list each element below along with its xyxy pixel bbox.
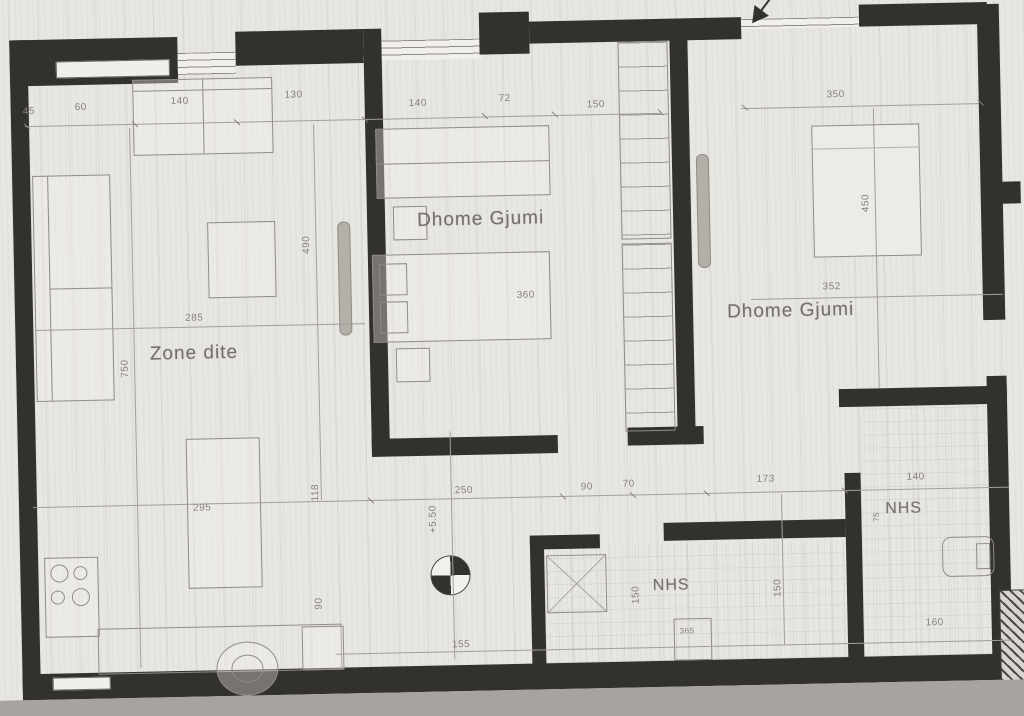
bed-right	[811, 123, 922, 257]
bed-line	[813, 146, 919, 149]
wall-exterior-top-3	[529, 17, 741, 43]
floor-plan-photo: +5.50	[0, 0, 1024, 716]
dimension-line	[129, 128, 141, 668]
wall-exterior-top-2	[235, 29, 364, 66]
wall-bedroom2-bath	[839, 386, 1007, 408]
dim-118: 118	[310, 484, 321, 502]
boiler-box	[673, 618, 712, 661]
dim-45: 45	[23, 106, 35, 117]
burner	[51, 590, 65, 604]
dim-90-vert: 90	[314, 597, 325, 609]
wall-exterior-right-upper	[977, 4, 1006, 320]
burner	[72, 588, 90, 606]
dim-250: 250	[455, 485, 473, 496]
wall-hatch-corner	[999, 589, 1024, 682]
burner	[73, 566, 87, 580]
dresser-line	[377, 160, 549, 165]
level-marker-icon	[430, 555, 471, 596]
sofa-cushion-line	[49, 287, 111, 289]
room-label-bedroom-center: Dhome Gjumi	[417, 207, 545, 232]
coffee-table	[207, 221, 277, 298]
washer-drum	[231, 654, 264, 683]
sofa-left	[32, 174, 115, 402]
room-label-bedroom-right: Dhome Gjumi	[727, 299, 855, 324]
stove	[44, 557, 100, 638]
dimension-line	[450, 431, 456, 659]
wall-bedroom1-bottom-left	[372, 435, 558, 457]
dim-90: 90	[581, 481, 593, 492]
window-inset-bottom-left	[53, 676, 111, 690]
wall-exterior-top-4	[859, 2, 987, 27]
kitchen-sink	[302, 626, 345, 671]
radiator	[337, 221, 352, 335]
dim-130: 130	[284, 89, 302, 100]
level-annotation: +5.50	[427, 505, 439, 533]
dim-450: 450	[860, 194, 871, 212]
dimension-line	[741, 103, 979, 109]
shower-cross-icon	[547, 555, 606, 612]
bedroom1-dresser	[375, 125, 550, 199]
pillar-top	[479, 12, 530, 55]
toilet	[942, 536, 995, 577]
wardrobe-lower	[622, 243, 676, 432]
burner	[50, 564, 68, 582]
radiator	[696, 154, 711, 268]
dim-140-bath: 140	[906, 471, 924, 482]
wardrobe-upper	[617, 41, 671, 240]
dim-750: 750	[120, 359, 131, 377]
dimension-line	[313, 124, 322, 500]
wall-stub-right	[1000, 181, 1020, 203]
dim-70: 70	[623, 478, 635, 489]
plan-sheet: +5.50	[0, 0, 1024, 716]
dim-160: 160	[926, 617, 944, 628]
room-label-zone-dite: Zone dite	[150, 342, 239, 366]
dim-365: 365	[680, 626, 695, 635]
dim-155: 155	[452, 639, 470, 650]
dim-360: 360	[517, 290, 535, 301]
dim-140: 140	[409, 98, 427, 109]
dim-285: 285	[185, 312, 203, 323]
dim-150-bath: 150	[772, 579, 783, 597]
pillow	[380, 301, 409, 334]
sofa-cushion-line	[202, 79, 205, 153]
dim-150-bath: 150	[630, 586, 641, 604]
wall-living-bedroom1	[363, 29, 390, 449]
dim-295: 295	[193, 502, 211, 513]
window-top-1	[178, 52, 236, 75]
dim-173: 173	[756, 474, 774, 485]
window-inset-top-left	[56, 59, 170, 78]
toilet-tank	[976, 543, 991, 569]
dim-140: 140	[170, 96, 188, 107]
sofa-top	[132, 77, 274, 156]
dim-350: 350	[826, 89, 844, 100]
plan-paper: +5.50	[0, 0, 1024, 716]
room-label-bath-right: NHS	[885, 499, 922, 518]
room-label-bath-center: NHS	[653, 576, 690, 595]
pillow	[379, 263, 408, 296]
dim-60: 60	[75, 102, 87, 113]
dim-150: 150	[587, 99, 605, 110]
dim-352: 352	[822, 281, 840, 292]
nightstand	[396, 348, 431, 383]
dimension-line	[25, 113, 661, 127]
shower	[546, 554, 607, 613]
wall-bath-center-top	[663, 519, 845, 541]
dim-72: 72	[498, 93, 510, 104]
dim-75: 75	[872, 512, 881, 522]
dim-490: 490	[301, 236, 312, 254]
